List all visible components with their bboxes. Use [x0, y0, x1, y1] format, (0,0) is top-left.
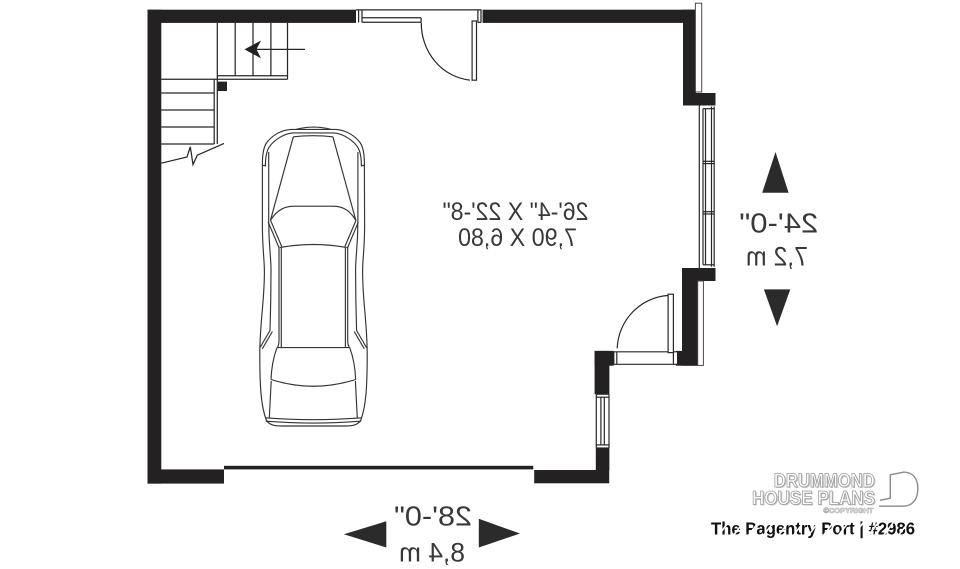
svg-text:8,4 m: 8,4 m — [399, 538, 465, 568]
svg-text:7,2 m: 7,2 m — [746, 242, 808, 272]
svg-text:28'-0": 28'-0" — [394, 501, 472, 532]
svg-text:24'-0": 24'-0" — [739, 208, 818, 239]
svg-text:7,90 X 6,80: 7,90 X 6,80 — [458, 224, 577, 252]
svg-text:26'-4" X 22'-8": 26'-4" X 22'-8" — [443, 198, 589, 226]
svg-text:©COPYRIGHT: ©COPYRIGHT — [823, 506, 873, 515]
